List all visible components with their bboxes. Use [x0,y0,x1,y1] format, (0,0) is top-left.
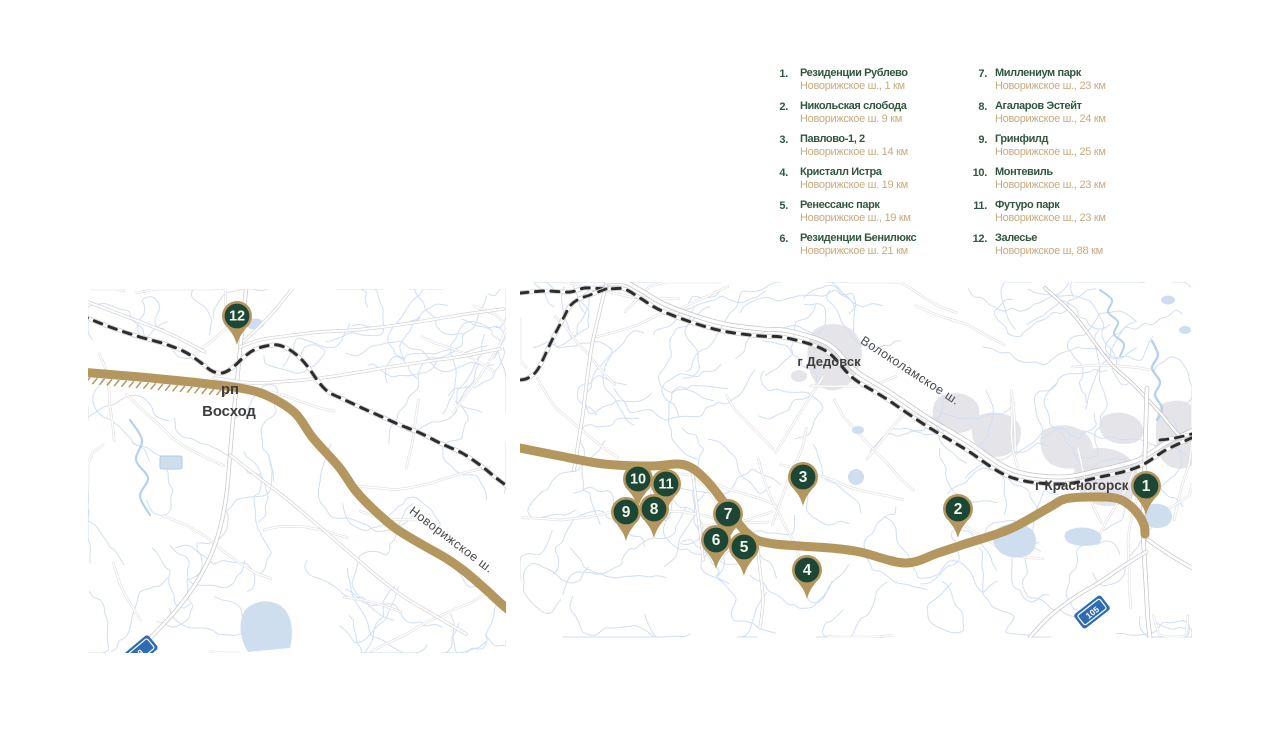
svg-text:1: 1 [1142,478,1151,495]
svg-text:г Красногорск: г Красногорск [1035,478,1129,493]
svg-text:11: 11 [658,477,673,493]
svg-text:2: 2 [954,501,963,518]
svg-text:7: 7 [724,506,733,523]
svg-text:3: 3 [799,469,808,486]
svg-text:4: 4 [803,562,812,579]
svg-text:5: 5 [740,539,749,556]
svg-text:рп: рп [221,382,239,398]
svg-text:10: 10 [630,472,646,488]
svg-text:Восход: Восход [202,404,256,420]
svg-text:12: 12 [229,309,245,325]
svg-text:6: 6 [712,532,721,549]
svg-text:г Дедовск: г Дедовск [797,354,861,369]
svg-text:Волоколамское ш.: Волоколамское ш. [858,333,962,408]
svg-text:8: 8 [650,501,659,518]
svg-text:9: 9 [622,504,631,521]
